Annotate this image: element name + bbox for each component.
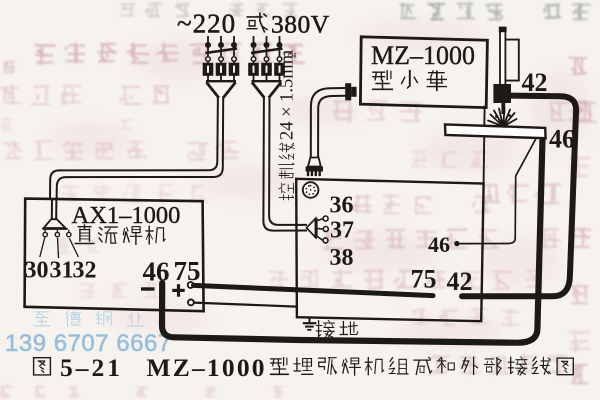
svg-text:46: 46 bbox=[549, 125, 575, 154]
svg-text:5–21: 5–21 bbox=[60, 353, 123, 382]
svg-text:380V: 380V bbox=[271, 10, 330, 39]
svg-text:32: 32 bbox=[73, 258, 97, 284]
svg-text:36: 36 bbox=[330, 193, 354, 219]
svg-text:24 × 1.5mm: 24 × 1.5mm bbox=[278, 49, 298, 140]
svg-text:MZ–1000: MZ–1000 bbox=[147, 353, 267, 382]
svg-text:MZ–1000: MZ–1000 bbox=[371, 41, 475, 70]
svg-text:2: 2 bbox=[287, 52, 299, 58]
svg-text:46: 46 bbox=[143, 257, 170, 287]
svg-text:75: 75 bbox=[411, 265, 437, 294]
svg-text:37: 37 bbox=[330, 218, 354, 244]
svg-text:75: 75 bbox=[174, 256, 201, 286]
svg-text:46: 46 bbox=[428, 232, 450, 257]
svg-text:42: 42 bbox=[522, 68, 548, 97]
svg-text:~220: ~220 bbox=[177, 9, 236, 39]
svg-text:31: 31 bbox=[50, 258, 74, 284]
svg-text:30: 30 bbox=[25, 258, 49, 284]
svg-text:42: 42 bbox=[447, 267, 473, 296]
svg-text:AX1–1000: AX1–1000 bbox=[72, 202, 181, 229]
svg-text:38: 38 bbox=[330, 245, 354, 271]
